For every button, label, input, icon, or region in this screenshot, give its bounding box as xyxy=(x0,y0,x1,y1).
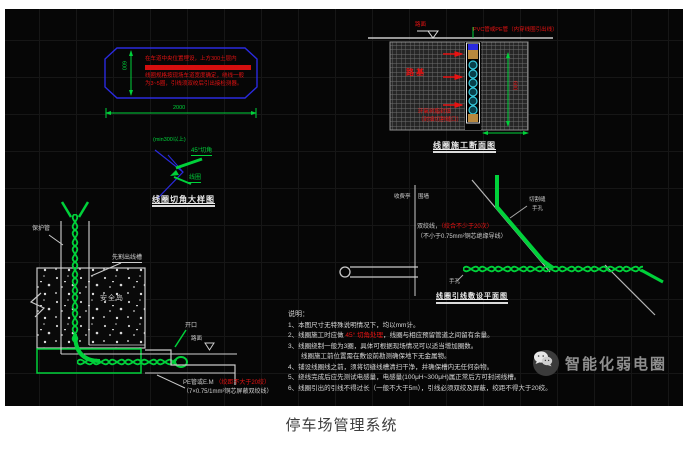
coil-plan-height-dim: 600 xyxy=(120,61,126,70)
coil-plan-note-4: 为3~5圈，引线须双绞后引出接检测器。 xyxy=(145,81,242,87)
plan-wire-spec-line1: 双绞线，（绞合不少于20次） xyxy=(417,224,493,231)
section-depth-dim: 600 xyxy=(511,81,517,90)
island-spec-pre: PE管或E.M xyxy=(183,380,215,386)
plan-view-title: 线圈引线敷设平面图 xyxy=(436,293,508,304)
note-line-6: 6、线圈引出的引线不得过长（一般不大于5m），引线必须双绞及屏蔽，绞距不得大于2… xyxy=(288,384,673,395)
island-spec-line1: PE管或E.M （绞距不大于20绞） xyxy=(183,380,270,387)
plan-wall-label: 围墙 xyxy=(418,194,429,200)
plan-wire-spec-line2: （不小于0.75mm²铜芯绝缘导线） xyxy=(417,234,507,241)
plan-booth-label: 收费亭 xyxy=(394,194,411,200)
wechat-icon xyxy=(533,350,559,376)
section-view-title: 线圈施工断面图 xyxy=(433,141,496,153)
island-open-label: 开口 xyxy=(185,323,197,330)
document-page: 在车道中央位置埋设，上方300土层内 不得有任何金属物，以免影响检测效果 线圈规… xyxy=(0,0,683,454)
note-line-2-post: ，线圈与相应预留管道之间留有余量。 xyxy=(383,332,494,339)
corner-min-label: (min300以上) xyxy=(153,137,186,143)
plan-wire-spec-red: （绞合不少于20次） xyxy=(441,224,493,230)
plan-handhole2-label: 手孔 xyxy=(449,279,460,285)
image-caption: 停车场管理系统 xyxy=(0,414,683,435)
section-level-label: 路面 xyxy=(415,22,426,28)
corner-cut-label: 45°切角 xyxy=(191,148,212,156)
plan-cut-label: 切割缝 xyxy=(529,197,546,203)
section-pipe-label: PVC管或PE管（内穿线圈引出线） xyxy=(473,27,558,33)
plan-wire-spec-pre: 双绞线， xyxy=(417,224,441,230)
coil-plan-note-3: 线圈规格按现场车道宽度确定，绕线一般 xyxy=(145,73,244,79)
island-slot-label: 先割出线槽 xyxy=(112,255,142,263)
corner-detail-title: 线圈切角大样图 xyxy=(152,195,215,207)
island-spec-line2: （7×0.75/1mm²铜芯屏蔽双绞线） xyxy=(183,389,273,396)
plan-handhole-label: 手孔 xyxy=(532,206,543,212)
section-fill-label-2: （封填切割缝口） xyxy=(418,117,462,123)
cad-drawing: 在车道中央位置埋设，上方300土层内 不得有任何金属物，以免影响检测效果 线圈规… xyxy=(5,9,683,406)
note-line-2-pre: 2、线圈施工时应做 xyxy=(288,332,345,339)
note-line-2: 2、线圈施工时应做 45° 切角处理，线圈与相应预留管道之间留有余量。 xyxy=(288,331,673,342)
island-road-label: 路面 xyxy=(191,336,202,342)
island-name-label: 安全岛 xyxy=(100,295,124,303)
island-conduit-label: 保护管 xyxy=(32,226,50,233)
watermark: 智能化弱电圈 xyxy=(533,350,667,376)
note-line-2-red: 45° 切角处理 xyxy=(345,332,383,339)
coil-plan-note-2: 不得有任何金属物，以免影响检测效果 xyxy=(145,65,251,70)
notes-heading: 说明： xyxy=(288,310,673,321)
coil-plan-note-1: 在车道中央位置埋设，上方300土层内 xyxy=(145,56,237,62)
island-spec-red: （绞距不大于20绞） xyxy=(215,380,270,386)
section-soil-label: 路基 xyxy=(406,68,426,77)
watermark-text: 智能化弱电圈 xyxy=(565,353,667,374)
island-detail-linework xyxy=(31,202,237,388)
section-fill-label-1: 环氧树脂封填 xyxy=(418,109,451,115)
corner-coil-label: 线圈 xyxy=(189,175,201,183)
note-line-1: 1、本图尺寸无特殊说明情况下，均以mm计。 xyxy=(288,321,673,332)
coil-plan-width-dim: 2000 xyxy=(173,105,185,111)
